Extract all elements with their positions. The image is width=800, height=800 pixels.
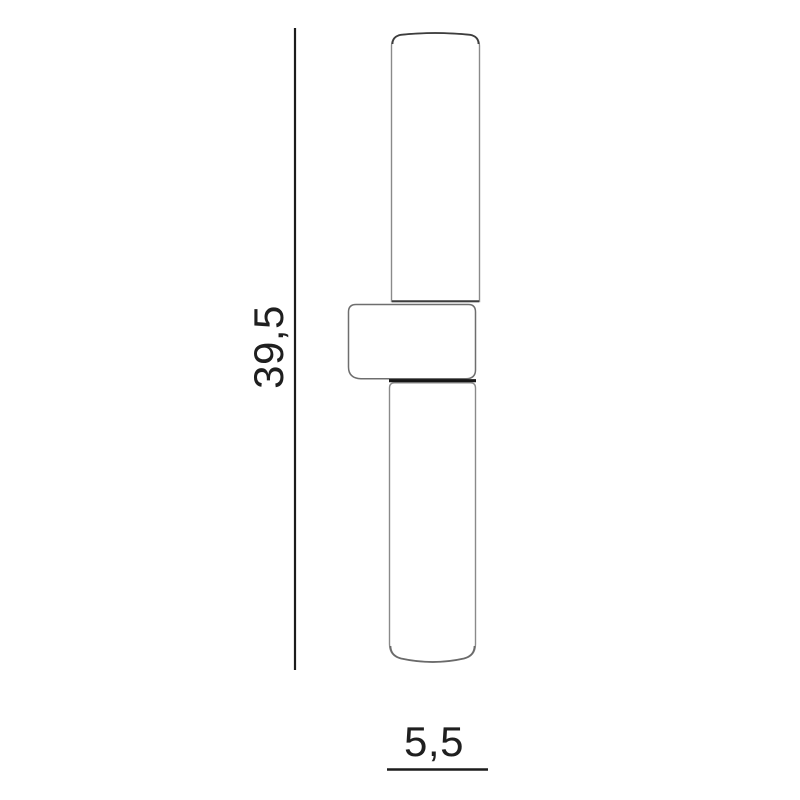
lamp-mount-bracket-outline (349, 305, 476, 379)
width-dimension-label: 5,5 (404, 718, 464, 765)
lamp-lower-tube-outline (390, 383, 476, 662)
lamp-dimension-diagram: 39,5 5,5 (0, 0, 800, 800)
dimension-diagram-page: 39,5 5,5 (0, 0, 800, 800)
height-dimension-label: 39,5 (245, 305, 292, 389)
lamp-upper-tube-outline (392, 33, 480, 302)
